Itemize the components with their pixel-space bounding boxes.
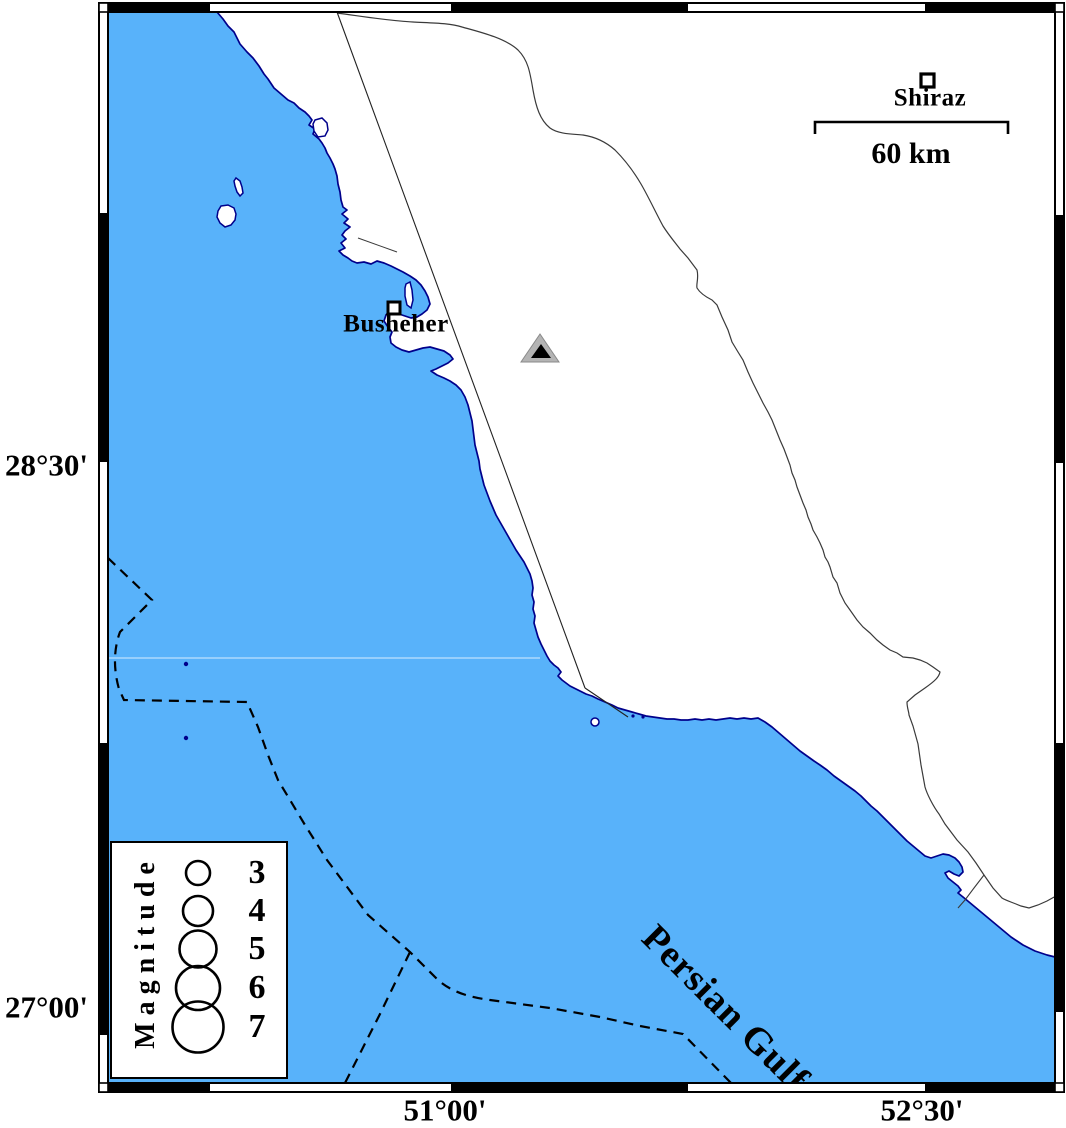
lon-label-5100: 51°00'	[403, 1095, 486, 1126]
islet-circle	[591, 718, 599, 726]
lon-label-5230: 52°30'	[880, 1095, 963, 1126]
shiraz-label: Shiraz	[894, 86, 966, 111]
legend-value-7: 7	[249, 1010, 266, 1044]
map-figure: Persian Gulf Busheher Shiraz 60 km 28°30…	[0, 0, 1066, 1128]
legend-value-6: 6	[249, 971, 266, 1005]
scale-bar	[815, 122, 1008, 134]
site-triangle-marker	[521, 334, 559, 362]
legend-value-5: 5	[249, 932, 266, 966]
legend-value-4: 4	[249, 894, 266, 928]
legend-title: Magnitude	[132, 855, 160, 1049]
coast-connector-line	[358, 238, 397, 252]
busheher-label: Busheher	[343, 312, 448, 337]
lagoon-pocket	[313, 118, 328, 137]
lat-label-2830: 28°30'	[5, 450, 88, 481]
scale-bar-label: 60 km	[871, 139, 950, 169]
city-markers	[388, 74, 934, 314]
legend-value-3: 3	[249, 856, 266, 890]
lat-label-2700: 27°00'	[5, 992, 88, 1023]
